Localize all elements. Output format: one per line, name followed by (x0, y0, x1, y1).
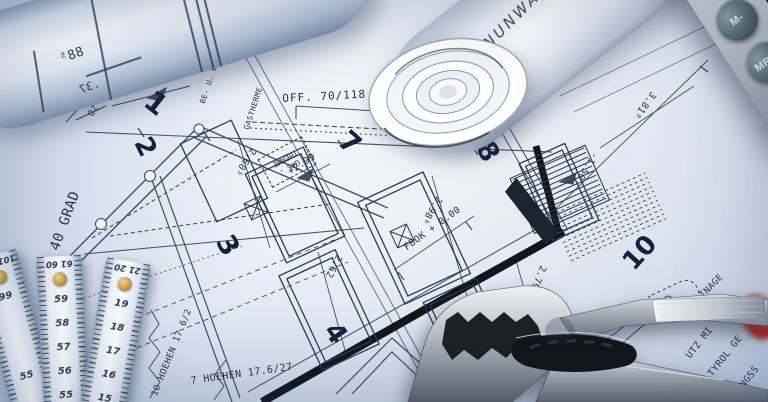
pliers-shapes (408, 286, 768, 402)
blueprint-photo: 1 2 3 4 7 8 10 4 +7.41 20 OFF. 70/118 +2… (0, 0, 768, 402)
pliers (0, 0, 768, 402)
